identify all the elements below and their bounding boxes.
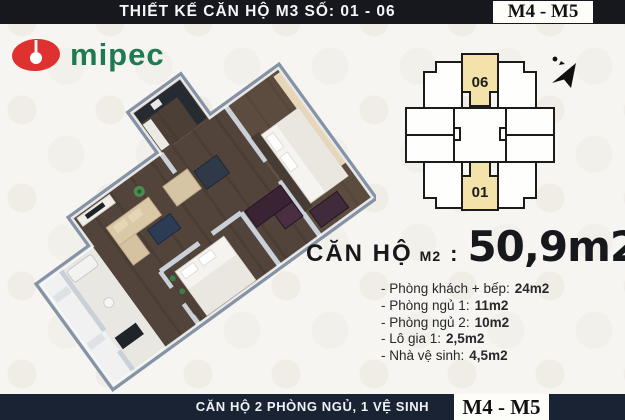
core-notch <box>500 128 506 140</box>
compass-north-icon <box>544 52 584 94</box>
page-title: THIẾT KẾ CĂN HỘ M3 SỐ: 01 - 06 <box>0 0 515 24</box>
list-item: - Phòng ngủ 1: 11m2 <box>381 298 549 315</box>
apartment-label: CĂN HỘ <box>306 240 413 268</box>
room-breakdown-list: - Phòng khách + bếp: 24m2 - Phòng ngủ 1:… <box>381 281 549 365</box>
top-title-bar: THIẾT KẾ CĂN HỘ M3 SỐ: 01 - 06 M4 - M5 <box>0 0 625 24</box>
core <box>454 108 506 162</box>
unit-block <box>424 162 462 208</box>
unit-top-label: 06 <box>472 74 489 91</box>
list-item: - Phòng ngủ 2: 10m2 <box>381 315 549 332</box>
apartment-area-value: 50,9m2 <box>467 222 625 271</box>
room-label: - Nhà vệ sinh: <box>381 348 464 365</box>
unit-block <box>424 62 462 108</box>
area-separator: : <box>450 241 457 267</box>
list-item: - Nhà vệ sinh: 4,5m2 <box>381 348 549 365</box>
unit-bottom-label: 01 <box>472 184 489 201</box>
room-value: 2,5m2 <box>446 331 484 348</box>
module-badge-top: M4 - M5 <box>493 1 593 23</box>
list-item: - Lô gia 1: 2,5m2 <box>381 331 549 348</box>
room-value: 10m2 <box>475 315 510 332</box>
core-notch <box>454 128 460 140</box>
room-value: 11m2 <box>475 298 509 315</box>
room-value: 4,5m2 <box>469 348 507 365</box>
room-label: - Phòng ngủ 2: <box>381 315 470 332</box>
list-item: - Phòng khách + bếp: 24m2 <box>381 281 549 298</box>
bottom-title-bar: CĂN HỘ 2 PHÒNG NGỦ, 1 VỆ SINH M4 - M5 <box>0 394 625 420</box>
room-label: - Phòng khách + bếp: <box>381 281 510 298</box>
apartment-area-line: CĂN HỘ M2 : 50,9m2 <box>306 222 618 271</box>
unit-block <box>498 62 536 108</box>
module-badge-bottom: M4 - M5 <box>454 394 549 420</box>
room-label: - Phòng ngủ 1: <box>381 298 470 315</box>
flyer-canvas: { "header": { "title": "THIẾT KẾ CĂN HỘ … <box>0 0 625 420</box>
room-label: - Lô gia 1: <box>381 331 441 348</box>
unit-block <box>498 162 536 208</box>
apartment-type-code: M2 <box>420 248 441 264</box>
room-value: 24m2 <box>515 281 550 298</box>
